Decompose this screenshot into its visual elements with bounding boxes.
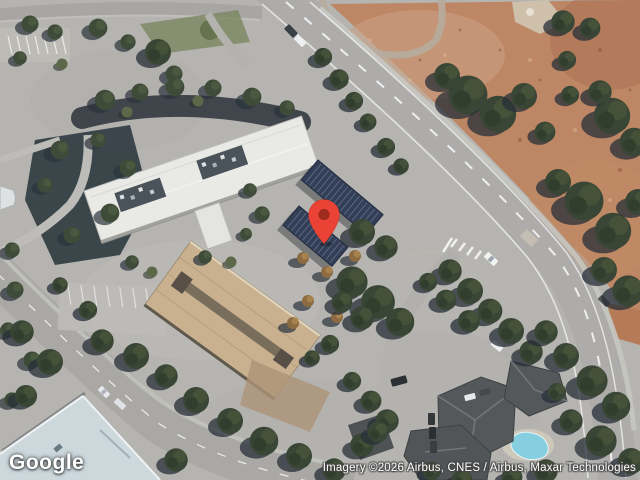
map-viewport[interactable]: Google Imagery ©2026 Airbus, CNES / Airb…	[0, 0, 640, 480]
satellite-imagery	[0, 0, 640, 480]
map-attribution: Imagery ©2026 Airbus, CNES / Airbus, Max…	[323, 462, 636, 474]
google-logo[interactable]: Google	[9, 451, 84, 475]
